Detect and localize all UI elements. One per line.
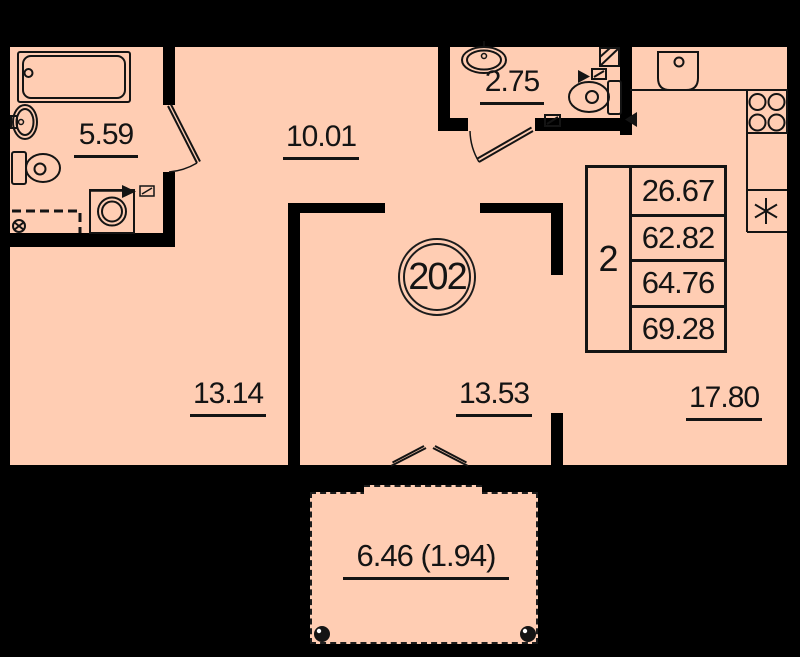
area-label-bathroom: 5.59 xyxy=(74,119,138,158)
area-label-hallway: 10.01 xyxy=(283,121,359,160)
stove-icon xyxy=(747,90,787,133)
apartment-number-badge: 202 xyxy=(398,238,476,316)
floor-drain-icon xyxy=(13,220,25,232)
bathroom-sink-icon xyxy=(11,105,37,139)
symbol-box-top xyxy=(592,69,606,79)
rooms-count-cell: 2 xyxy=(588,168,632,350)
area-info-table: 2 26.67 62.82 64.76 69.28 xyxy=(585,165,727,353)
table-cell-total-area-1: 64.76 xyxy=(632,259,724,305)
passage-vent-arrow-icon xyxy=(625,112,637,127)
balcony-door xyxy=(391,446,468,466)
vent-shaft-icon xyxy=(600,48,619,66)
washing-machine-icon xyxy=(90,185,154,233)
apartment-number: 202 xyxy=(408,256,465,299)
bathtub-icon xyxy=(18,52,130,102)
area-label-room-center: 13.53 xyxy=(456,378,532,417)
table-cell-living-area: 26.67 xyxy=(632,168,724,214)
balcony-post-icons xyxy=(314,626,536,642)
kitchen-sink-icon xyxy=(658,52,698,90)
symbol-box-bottom xyxy=(545,115,560,126)
table-cell-total-area-2: 69.28 xyxy=(632,305,724,351)
bathroom-toilet-icon xyxy=(12,152,60,184)
table-cell-apartment-area: 62.82 xyxy=(632,214,724,260)
area-label-balcony: 6.46 (1.94) xyxy=(343,540,509,580)
floor-plan: 5.59 10.01 2.75 13.14 13.53 17.80 6.46 (… xyxy=(0,0,800,657)
area-label-wc: 2.75 xyxy=(480,66,544,105)
area-label-room-left: 13.14 xyxy=(190,378,266,417)
area-label-kitchen-living: 17.80 xyxy=(686,382,762,421)
wc-toilet-icon xyxy=(569,81,621,114)
wc-door xyxy=(470,128,533,163)
fridge-asterisk-icon xyxy=(755,198,777,224)
bathroom-door xyxy=(168,105,200,173)
